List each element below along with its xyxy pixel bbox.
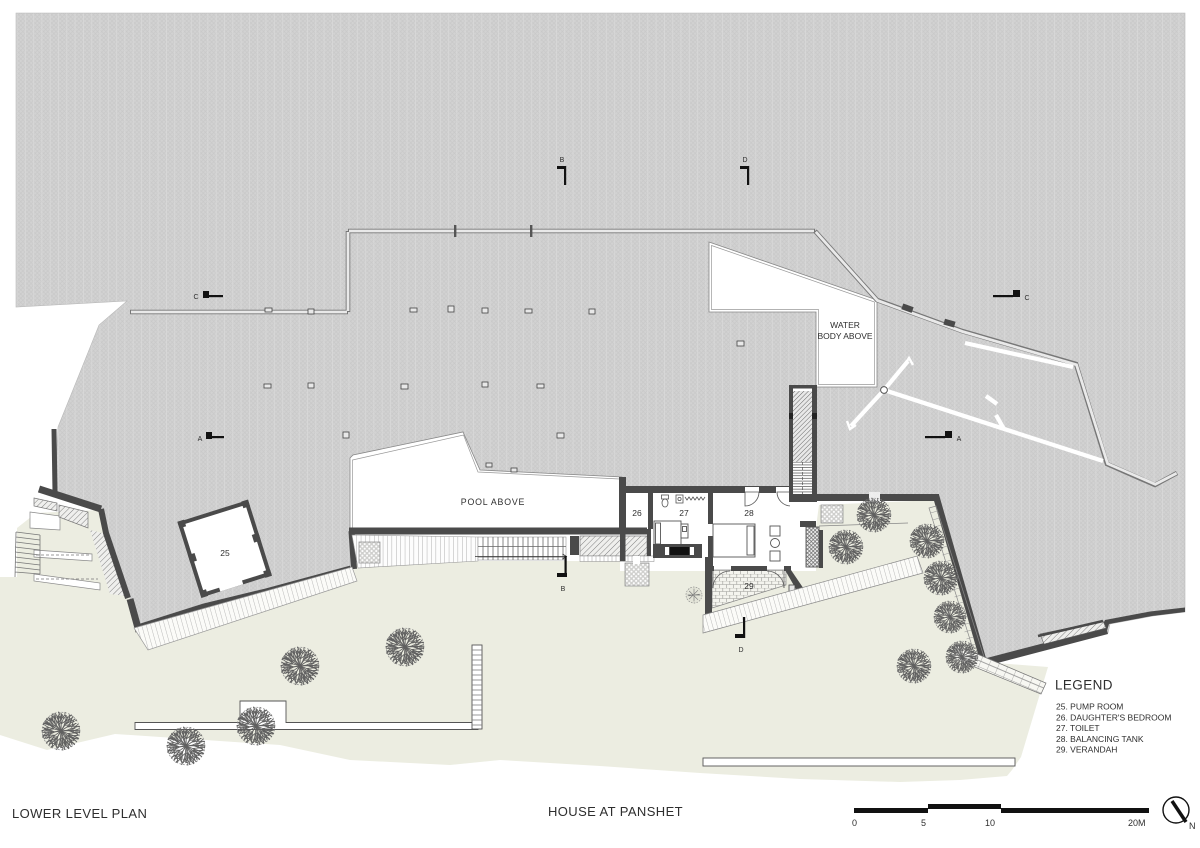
svg-text:LEGEND: LEGEND bbox=[1055, 678, 1113, 693]
svg-text:26. DAUGHTER'S BEDROOM: 26. DAUGHTER'S BEDROOM bbox=[1056, 712, 1171, 722]
svg-text:27: 27 bbox=[679, 508, 689, 518]
svg-text:26: 26 bbox=[632, 508, 642, 518]
svg-text:BODY ABOVE: BODY ABOVE bbox=[817, 331, 872, 341]
svg-text:10: 10 bbox=[985, 818, 995, 828]
svg-text:29: 29 bbox=[744, 581, 754, 591]
svg-text:N: N bbox=[1189, 821, 1196, 831]
svg-text:C: C bbox=[1024, 295, 1029, 302]
svg-text:LOWER LEVEL PLAN: LOWER LEVEL PLAN bbox=[12, 806, 147, 821]
svg-text:D: D bbox=[742, 157, 747, 164]
svg-text:0: 0 bbox=[852, 818, 857, 828]
svg-text:D: D bbox=[738, 647, 743, 654]
svg-text:B: B bbox=[561, 586, 566, 593]
svg-text:29. VERANDAH: 29. VERANDAH bbox=[1056, 745, 1117, 755]
svg-text:28. BALANCING TANK: 28. BALANCING TANK bbox=[1056, 734, 1144, 744]
svg-text:25: 25 bbox=[220, 548, 230, 558]
svg-text:WATER: WATER bbox=[830, 320, 860, 330]
svg-text:20M: 20M bbox=[1128, 818, 1146, 828]
svg-text:25. PUMP ROOM: 25. PUMP ROOM bbox=[1056, 702, 1123, 712]
svg-text:5: 5 bbox=[921, 818, 926, 828]
svg-text:A: A bbox=[957, 436, 962, 443]
svg-text:HOUSE AT PANSHET: HOUSE AT PANSHET bbox=[548, 804, 683, 819]
svg-text:27. TOILET: 27. TOILET bbox=[1056, 723, 1100, 733]
svg-text:C: C bbox=[193, 294, 198, 301]
svg-text:POOL ABOVE: POOL ABOVE bbox=[461, 497, 525, 507]
svg-text:A: A bbox=[198, 436, 203, 443]
svg-text:28: 28 bbox=[744, 508, 754, 518]
svg-text:B: B bbox=[560, 157, 565, 164]
